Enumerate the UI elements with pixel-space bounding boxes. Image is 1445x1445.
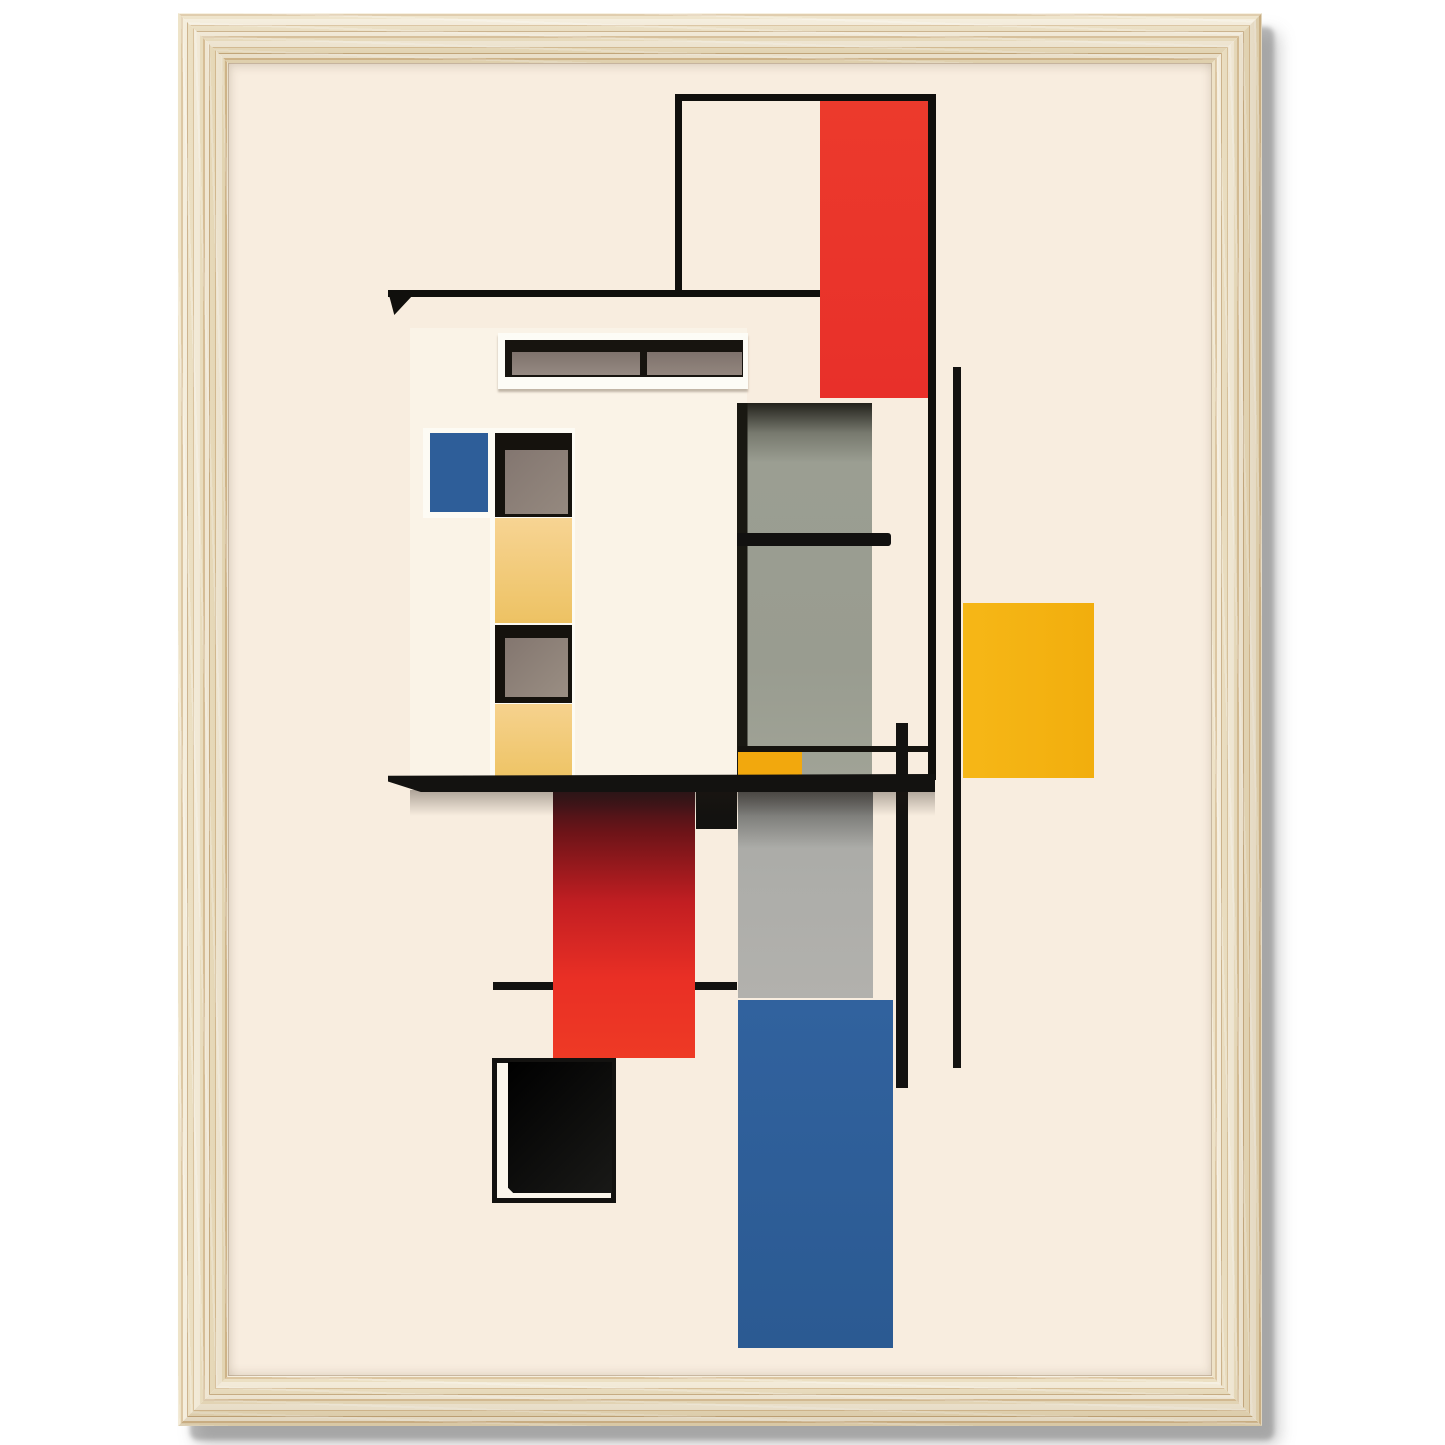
black-box-fill (508, 1062, 612, 1193)
frame-left-rail (178, 13, 228, 1426)
column-pane-2 (505, 638, 568, 697)
column-pane-1 (505, 450, 568, 514)
gray-panel-lower (738, 790, 873, 998)
red-rect-top (820, 101, 928, 398)
top-horizontal-line (388, 290, 822, 297)
blue-window (430, 433, 488, 512)
main-bar (388, 774, 935, 792)
blue-rect (738, 1000, 893, 1348)
outline-box-right (928, 94, 936, 780)
clerestory-pane-left (512, 352, 640, 375)
vertical-line-long (953, 367, 961, 1068)
yellow-square (963, 603, 1094, 778)
column-yellow-1 (495, 518, 572, 623)
outline-box-left (675, 94, 682, 295)
small-yellow-rect (738, 752, 802, 775)
house-body (410, 328, 747, 777)
outline-box-top (675, 94, 935, 101)
frame-bottom-rail (178, 1376, 1262, 1426)
gray-panel-upper (737, 403, 872, 776)
frame-top-rail (178, 13, 1262, 63)
framed-poster-product-image (0, 0, 1445, 1445)
column-yellow-2 (495, 704, 572, 776)
red-rect-bottom (553, 790, 695, 1058)
gray-panel-bar (737, 533, 891, 546)
bar-shadow (410, 790, 935, 816)
frame-right-rail (1212, 13, 1262, 1426)
clerestory-pane-right (647, 352, 742, 375)
